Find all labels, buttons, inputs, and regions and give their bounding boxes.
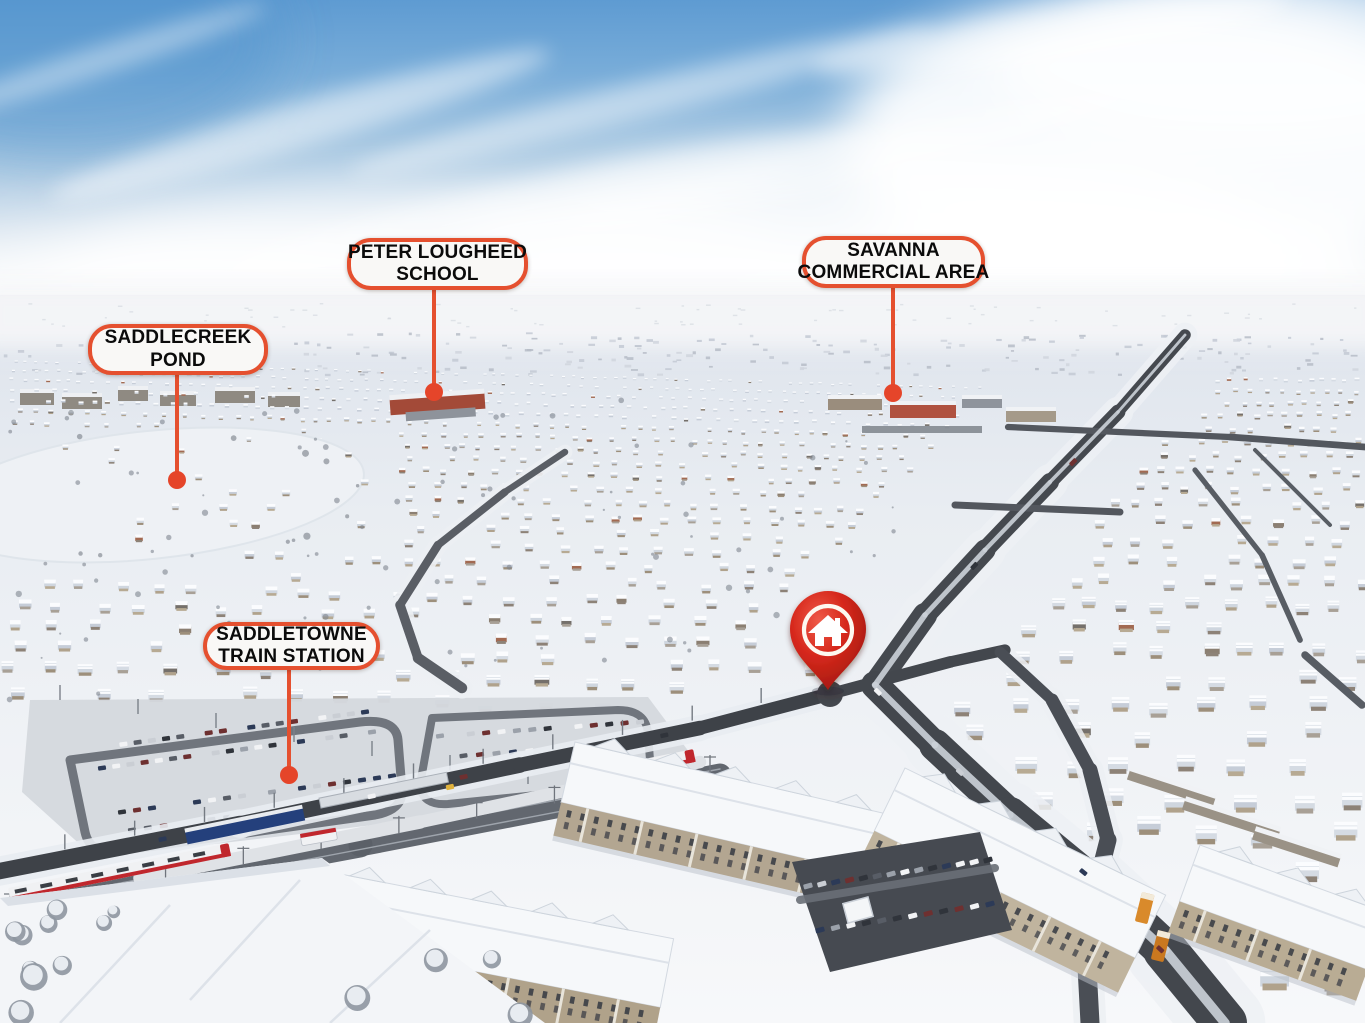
annotated-aerial-photo: SADDLECREEKPONDPETER LOUGHEEDSCHOOLSAVAN…: [0, 0, 1365, 1023]
leader-dot: [280, 766, 298, 784]
leader-peter-lougheed-school: [425, 290, 443, 401]
leader-saddlecreek-pond: [168, 375, 186, 489]
leader-saddletowne-train-station: [280, 670, 298, 784]
leader-dot: [168, 471, 186, 489]
leader-savanna-commercial-area: [884, 288, 902, 402]
leader-dot: [884, 384, 902, 402]
leader-dot: [425, 383, 443, 401]
annotation-overlay: [0, 0, 1365, 1023]
home-location-pin: [790, 591, 866, 696]
